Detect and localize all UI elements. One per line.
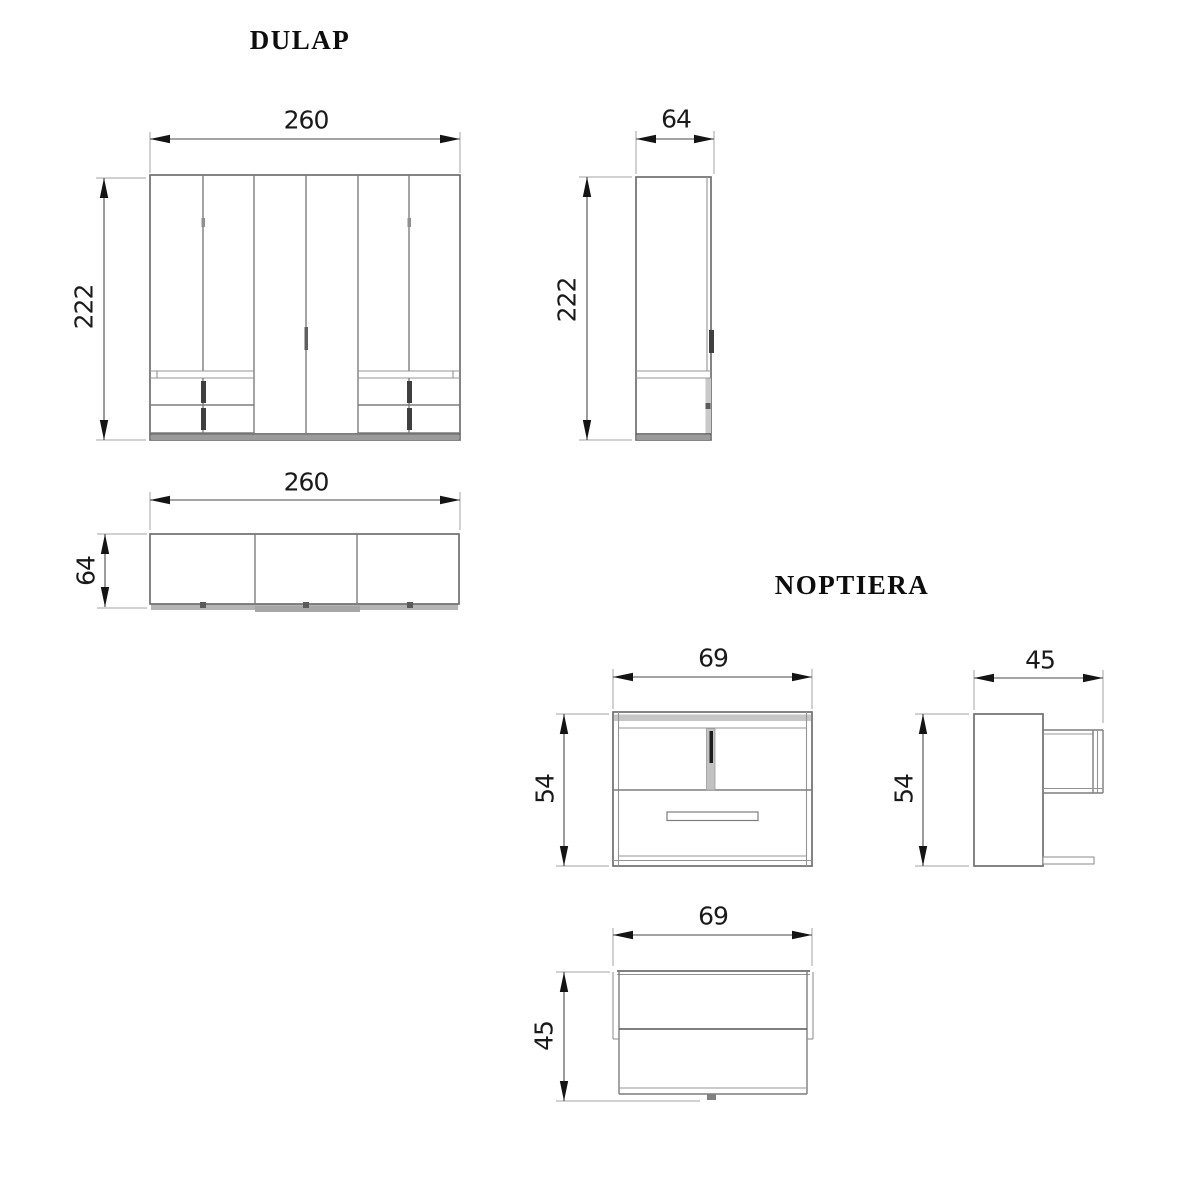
nightstand-front-width-dimension: 69 [613, 644, 812, 682]
wardrobe-top-depth-dimension: 64 [72, 534, 110, 607]
wardrobe-top-handle-mark [303, 602, 309, 608]
nightstand-top-width-dimension: 69 [613, 902, 812, 940]
nightstand-front-height-label: 54 [531, 774, 560, 804]
wardrobe-drawing: DULAP 260 222 [70, 25, 715, 612]
wardrobe-drawer-handle [201, 408, 206, 430]
nightstand-front-width-label: 69 [698, 644, 728, 673]
nightstand-top-extension-lines [556, 928, 812, 1101]
wardrobe-side-depth-dimension: 64 [636, 105, 714, 144]
nightstand-side-height-dimension: 54 [890, 714, 928, 866]
wardrobe-title: DULAP [250, 25, 351, 55]
wardrobe-top-width-label: 260 [284, 468, 329, 497]
wardrobe-front-width-dimension: 260 [150, 106, 460, 144]
nightstand-drawer-handle-slot [667, 812, 758, 821]
wardrobe-side-height-label: 222 [553, 278, 582, 323]
wardrobe-side-body [636, 177, 714, 440]
wardrobe-drawer-handle [201, 381, 206, 403]
nightstand-side-body [974, 714, 1103, 866]
wardrobe-front-height-dimension: 222 [70, 178, 109, 440]
wardrobe-top-depth-label: 64 [72, 556, 101, 586]
wardrobe-left-door-handle [202, 218, 206, 227]
nightstand-side-base [1043, 857, 1094, 864]
wardrobe-side-hinge-mark [706, 403, 711, 409]
nightstand-front-height-dimension: 54 [531, 714, 569, 866]
nightstand-side-depth-dimension: 45 [974, 646, 1103, 683]
wardrobe-top-body [150, 534, 459, 612]
wardrobe-middle-door-handle [305, 327, 309, 350]
wardrobe-front-width-label: 260 [284, 106, 329, 135]
wardrobe-drawer-handle [407, 408, 412, 430]
wardrobe-front-body [150, 175, 460, 440]
wardrobe-top-handle-mark [407, 602, 413, 608]
nightstand-front-view: 69 54 [531, 644, 813, 867]
nightstand-top-handle-mark [707, 1094, 716, 1100]
nightstand-top-width-label: 69 [698, 902, 728, 931]
technical-drawing: DULAP 260 222 [0, 0, 1200, 1200]
nightstand-side-height-label: 54 [890, 774, 919, 804]
nightstand-door-handle [710, 731, 714, 763]
wardrobe-top-width-dimension: 260 [150, 468, 460, 505]
wardrobe-right-door-handle [408, 218, 412, 227]
nightstand-top-depth-label: 45 [530, 1021, 559, 1051]
wardrobe-top-view: 260 64 [72, 468, 461, 613]
nightstand-side-view: 45 54 [890, 646, 1104, 867]
nightstand-drawing: NOPTIERA 69 54 [530, 570, 1104, 1101]
wardrobe-top-handle-mark [200, 602, 206, 608]
wardrobe-drawer-handle [407, 381, 412, 403]
nightstand-top-depth-dimension: 45 [530, 972, 569, 1101]
nightstand-front-body [613, 712, 812, 866]
drawing-canvas: DULAP 260 222 [0, 0, 1200, 1200]
nightstand-top-body [613, 971, 813, 1100]
wardrobe-front-view: 260 222 [70, 106, 461, 441]
nightstand-title: NOPTIERA [775, 570, 930, 600]
nightstand-top-view: 69 45 [530, 902, 814, 1102]
wardrobe-side-depth-label: 64 [661, 105, 691, 134]
wardrobe-side-view: 64 222 [553, 105, 715, 441]
nightstand-side-depth-label: 45 [1025, 646, 1055, 675]
wardrobe-side-door-handle [709, 330, 714, 353]
wardrobe-front-height-label: 222 [70, 285, 99, 330]
wardrobe-side-height-dimension: 222 [553, 177, 592, 440]
